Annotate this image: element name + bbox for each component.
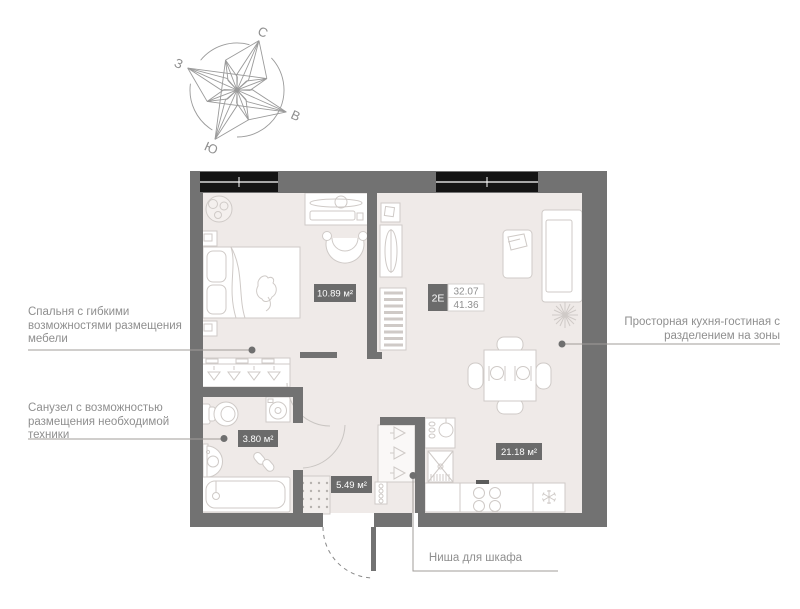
- bedroom-bed: [203, 247, 300, 318]
- hallway-area-label: 5.49 м²: [331, 476, 372, 493]
- entrance-door-swing: [323, 527, 374, 578]
- wall-niche-top: [380, 417, 425, 425]
- hall-shelf-box: [381, 203, 400, 222]
- unit-type: 2Е: [432, 293, 445, 305]
- daybed: [503, 230, 532, 278]
- annotation-bathroom: Санузел с возможностью размещения необхо…: [28, 402, 169, 443]
- svg-text:3.80 м²: 3.80 м²: [243, 434, 274, 445]
- wall-stub-bedroom-door: [300, 352, 337, 358]
- wall-right: [582, 171, 607, 527]
- wardrobe-niche: [378, 425, 415, 482]
- shoe-shelf: [375, 482, 387, 504]
- bathroom-area-label: 3.80 м²: [238, 430, 278, 447]
- annotation-bathroom-line3: техники: [28, 429, 169, 443]
- kitchen-sink-unit: [425, 418, 455, 448]
- annotation-bedroom: Спальня с гибкими возможностями размещен…: [28, 306, 182, 347]
- washing-machine: [266, 397, 290, 422]
- annotation-bedroom-line3: мебели: [28, 333, 182, 347]
- annotation-kitchen: Просторная кухня-гостиная с разделением …: [620, 316, 780, 343]
- wall-bathroom-north: [203, 387, 293, 397]
- unit-badge: 2Е 32.07 41.36: [428, 284, 484, 311]
- toilet: [200, 402, 238, 426]
- svg-text:10.89 м²: 10.89 м²: [317, 289, 353, 300]
- wall-bathroom-east-lower: [293, 470, 303, 513]
- bedroom-area-label: 10.89 м²: [314, 284, 356, 302]
- bedroom-desk: [305, 193, 372, 225]
- annotation-bedroom-line1: Спальня с гибкими: [28, 306, 182, 320]
- floorplan-drawing: С В Ю З: [0, 0, 800, 609]
- bedroom-plant: [206, 196, 232, 222]
- svg-text:21.18 м²: 21.18 м²: [501, 447, 537, 458]
- annotation-bathroom-line2: размещения необходимой: [28, 416, 169, 430]
- unit-total-area: 41.36: [453, 300, 478, 311]
- fridge: [533, 483, 565, 512]
- compass-north-label: С: [255, 23, 270, 41]
- wall-bottom-mid: [374, 513, 412, 527]
- window-bedroom: [200, 172, 278, 192]
- wall-bottom-right: [418, 513, 607, 527]
- compass-east-label: В: [289, 107, 303, 124]
- hall-rack: [380, 288, 406, 350]
- annotation-bathroom-line1: Санузел с возможностью: [28, 402, 169, 416]
- bathtub: [201, 477, 290, 512]
- svg-text:5.49 м²: 5.49 м²: [336, 480, 367, 491]
- sofa: [542, 210, 582, 302]
- kitchen-area-label: 21.18 м²: [496, 443, 542, 460]
- compass-rose: С В Ю З: [146, 0, 328, 183]
- window-living: [436, 172, 538, 192]
- wall-bathroom-east-upper: [293, 387, 303, 423]
- wall-niche-right: [415, 425, 425, 513]
- hall-mirror: [380, 225, 402, 277]
- unit-living-area: 32.07: [453, 287, 478, 298]
- wall-left: [190, 171, 203, 527]
- wall-divider: [367, 193, 377, 352]
- compass-west-label: З: [172, 55, 185, 72]
- compass-south-label: Ю: [202, 138, 220, 157]
- annotation-niche: Ниша для шкафа: [413, 552, 538, 566]
- annotation-bedroom-line2: возможностями размещения: [28, 320, 182, 334]
- annotation-kitchen-line2: разделением на зоны: [620, 330, 780, 344]
- annotation-kitchen-line1: Просторная кухня-гостиная с: [620, 316, 780, 330]
- wall-bottom-left: [190, 513, 323, 527]
- bedroom-wardrobe: [198, 358, 290, 387]
- wall-divider-foot: [367, 352, 382, 359]
- entrance-door-leaf: [371, 527, 376, 571]
- dishwasher: [428, 451, 453, 482]
- floorplan-page: С В Ю З: [0, 0, 800, 609]
- annotation-niche-line1: Ниша для шкафа: [413, 552, 538, 566]
